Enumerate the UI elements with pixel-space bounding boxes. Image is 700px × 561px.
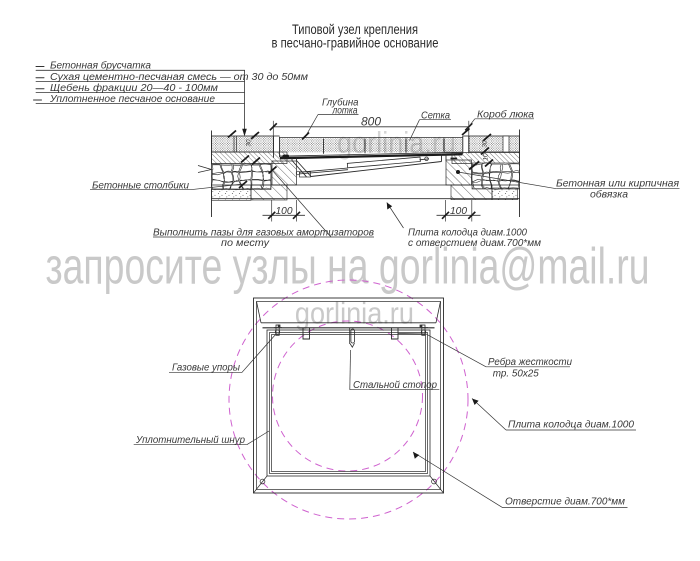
svg-text:Уплотнительный шнур: Уплотнительный шнур — [135, 435, 245, 446]
svg-text:100: 100 — [450, 205, 467, 217]
svg-text:100: 100 — [276, 205, 293, 217]
svg-text:Ребра жесткости: Ребра жесткости — [488, 356, 572, 368]
svg-text:Газовые упоры: Газовые упоры — [172, 362, 241, 373]
svg-text:Плита колодца диам.1000: Плита колодца диам.1000 — [408, 228, 527, 239]
svg-text:с отверстием диам.700*мм: с отверстием диам.700*мм — [408, 238, 541, 249]
svg-text:gorlinia.ru: gorlinia.ru — [295, 296, 414, 331]
svg-text:Сухая цементно-песчаная смесь: Сухая цементно-песчаная смесь — от 30 до… — [50, 72, 308, 83]
svg-text:запросите узлы на gorlinia@mai: запросите узлы на gorlinia@mail.ru — [46, 238, 650, 295]
svg-text:тр. 50х25: тр. 50х25 — [493, 369, 539, 380]
svg-text:Бетонная брусчатка: Бетонная брусчатка — [50, 60, 151, 72]
svg-text:Отверстие диам.700*мм: Отверстие диам.700*мм — [505, 497, 625, 508]
svg-text:в песчано-гравийное основание: в песчано-гравийное основание — [272, 35, 439, 51]
svg-text:по месту: по месту — [221, 238, 270, 249]
svg-text:30: 30 — [246, 139, 253, 147]
svg-text:обвязка: обвязка — [590, 189, 628, 201]
svg-text:Бетонная или кирпичная: Бетонная или кирпичная — [556, 178, 680, 189]
svg-text:Щебень фракции 20—40 - 100мм: Щебень фракции 20—40 - 100мм — [50, 82, 218, 94]
svg-text:800: 800 — [361, 114, 381, 128]
svg-text:10: 10 — [483, 153, 490, 161]
svg-text:30: 30 — [482, 140, 489, 148]
svg-text:Плита колодца диам.1000: Плита колодца диам.1000 — [508, 420, 634, 431]
